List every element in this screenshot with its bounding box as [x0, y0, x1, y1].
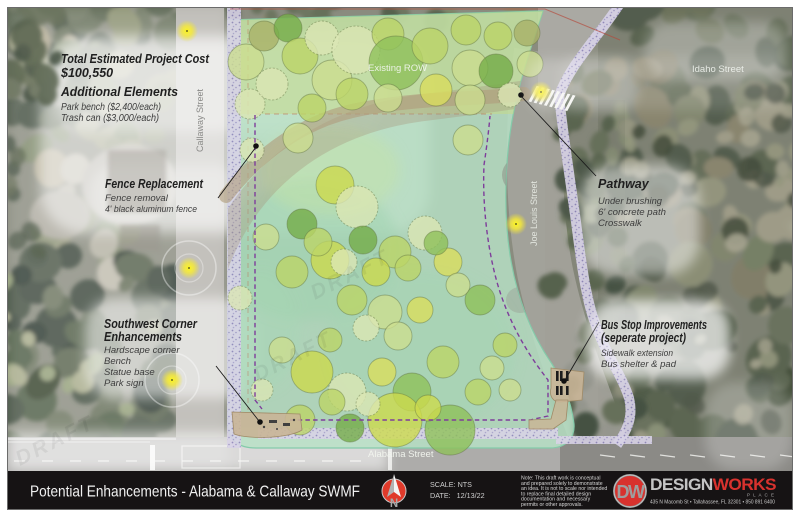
- svg-text:Under brushing: Under brushing: [598, 196, 663, 207]
- svg-text:Bus Stop Improvements: Bus Stop Improvements: [601, 318, 707, 332]
- svg-text:Joe Louis Street: Joe Louis Street: [529, 180, 539, 246]
- svg-text:(seperate project): (seperate project): [601, 331, 686, 345]
- svg-text:$100,550: $100,550: [60, 66, 113, 80]
- svg-text:Fence Replacement: Fence Replacement: [105, 177, 204, 191]
- svg-text:Fence removal: Fence removal: [105, 193, 169, 204]
- svg-text:Park bench ($2,400/each): Park bench ($2,400/each): [61, 102, 161, 113]
- svg-text:Idaho Street: Idaho Street: [692, 64, 744, 75]
- svg-text:Pathway: Pathway: [598, 177, 650, 191]
- svg-text:435 N Macomb St • Tallahassee,: 435 N Macomb St • Tallahassee, FL 32301 …: [650, 500, 775, 506]
- svg-text:Bench: Bench: [104, 356, 131, 367]
- svg-text:4' black aluminum fence: 4' black aluminum fence: [105, 204, 197, 215]
- svg-text:DESIGNWORKS: DESIGNWORKS: [650, 475, 776, 494]
- svg-text:Trash can ($3,000/each): Trash can ($3,000/each): [61, 113, 159, 124]
- svg-text:Crosswalk: Crosswalk: [598, 218, 643, 229]
- svg-text:N: N: [390, 498, 398, 510]
- svg-text:Sidewalk extension: Sidewalk extension: [601, 348, 673, 359]
- svg-text:Callaway Street: Callaway Street: [195, 88, 205, 152]
- svg-text:Alabama Street: Alabama Street: [368, 449, 434, 460]
- svg-text:Southwest Corner: Southwest Corner: [104, 317, 198, 331]
- svg-text:Hardscape corner: Hardscape corner: [104, 345, 180, 356]
- svg-text:P L A C E: P L A C E: [747, 493, 775, 498]
- svg-text:Statue base: Statue base: [104, 367, 155, 378]
- svg-text:Park sign: Park sign: [104, 378, 144, 389]
- svg-text:Total Estimated Project Cost: Total Estimated Project Cost: [61, 52, 210, 66]
- svg-text:DATE: 12/13/22: DATE: 12/13/22: [430, 491, 485, 500]
- svg-text:SCALE: NTS: SCALE: NTS: [430, 480, 472, 489]
- svg-text:Bus shelter & pad: Bus shelter & pad: [601, 359, 677, 370]
- svg-text:Existing ROW: Existing ROW: [368, 63, 427, 74]
- svg-text:Potential Enhancements - Alaba: Potential Enhancements - Alabama & Calla…: [30, 484, 360, 501]
- svg-text:permits or other approvals.: permits or other approvals.: [521, 502, 583, 508]
- svg-text:Enhancements: Enhancements: [104, 330, 182, 344]
- svg-text:Additional Elements: Additional Elements: [60, 85, 178, 99]
- svg-text:DW: DW: [617, 482, 645, 502]
- svg-text:6' concrete path: 6' concrete path: [598, 207, 666, 218]
